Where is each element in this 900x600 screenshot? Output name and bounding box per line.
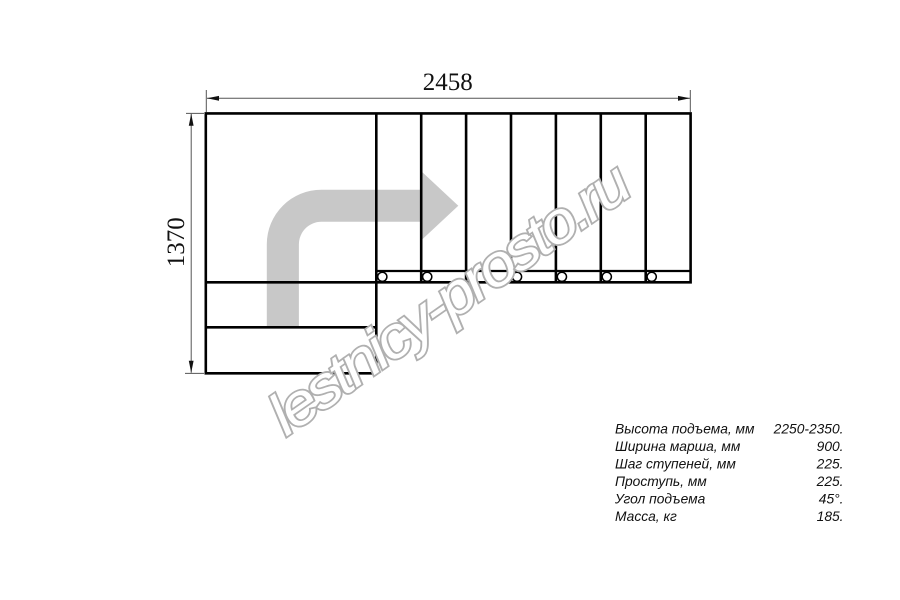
svg-text:2250-2350.: 2250-2350.	[773, 422, 844, 437]
svg-text:185.: 185.	[817, 509, 844, 524]
svg-text:Ширина марша, мм: Ширина марша, мм	[615, 439, 741, 454]
svg-text:Проступь, мм: Проступь, мм	[615, 474, 707, 489]
svg-text:2458: 2458	[423, 69, 473, 96]
svg-text:45°.: 45°.	[819, 492, 844, 507]
svg-text:Угол подъема: Угол подъема	[614, 492, 706, 507]
svg-text:Шаг ступеней, мм: Шаг ступеней, мм	[615, 457, 736, 472]
svg-text:1370: 1370	[163, 217, 190, 267]
svg-text:Высота подъема, мм: Высота подъема, мм	[615, 422, 755, 437]
svg-text:225.: 225.	[816, 474, 844, 489]
svg-text:225.: 225.	[816, 457, 844, 472]
svg-text:900.: 900.	[817, 439, 844, 454]
svg-text:Масса, кг: Масса, кг	[615, 509, 677, 524]
